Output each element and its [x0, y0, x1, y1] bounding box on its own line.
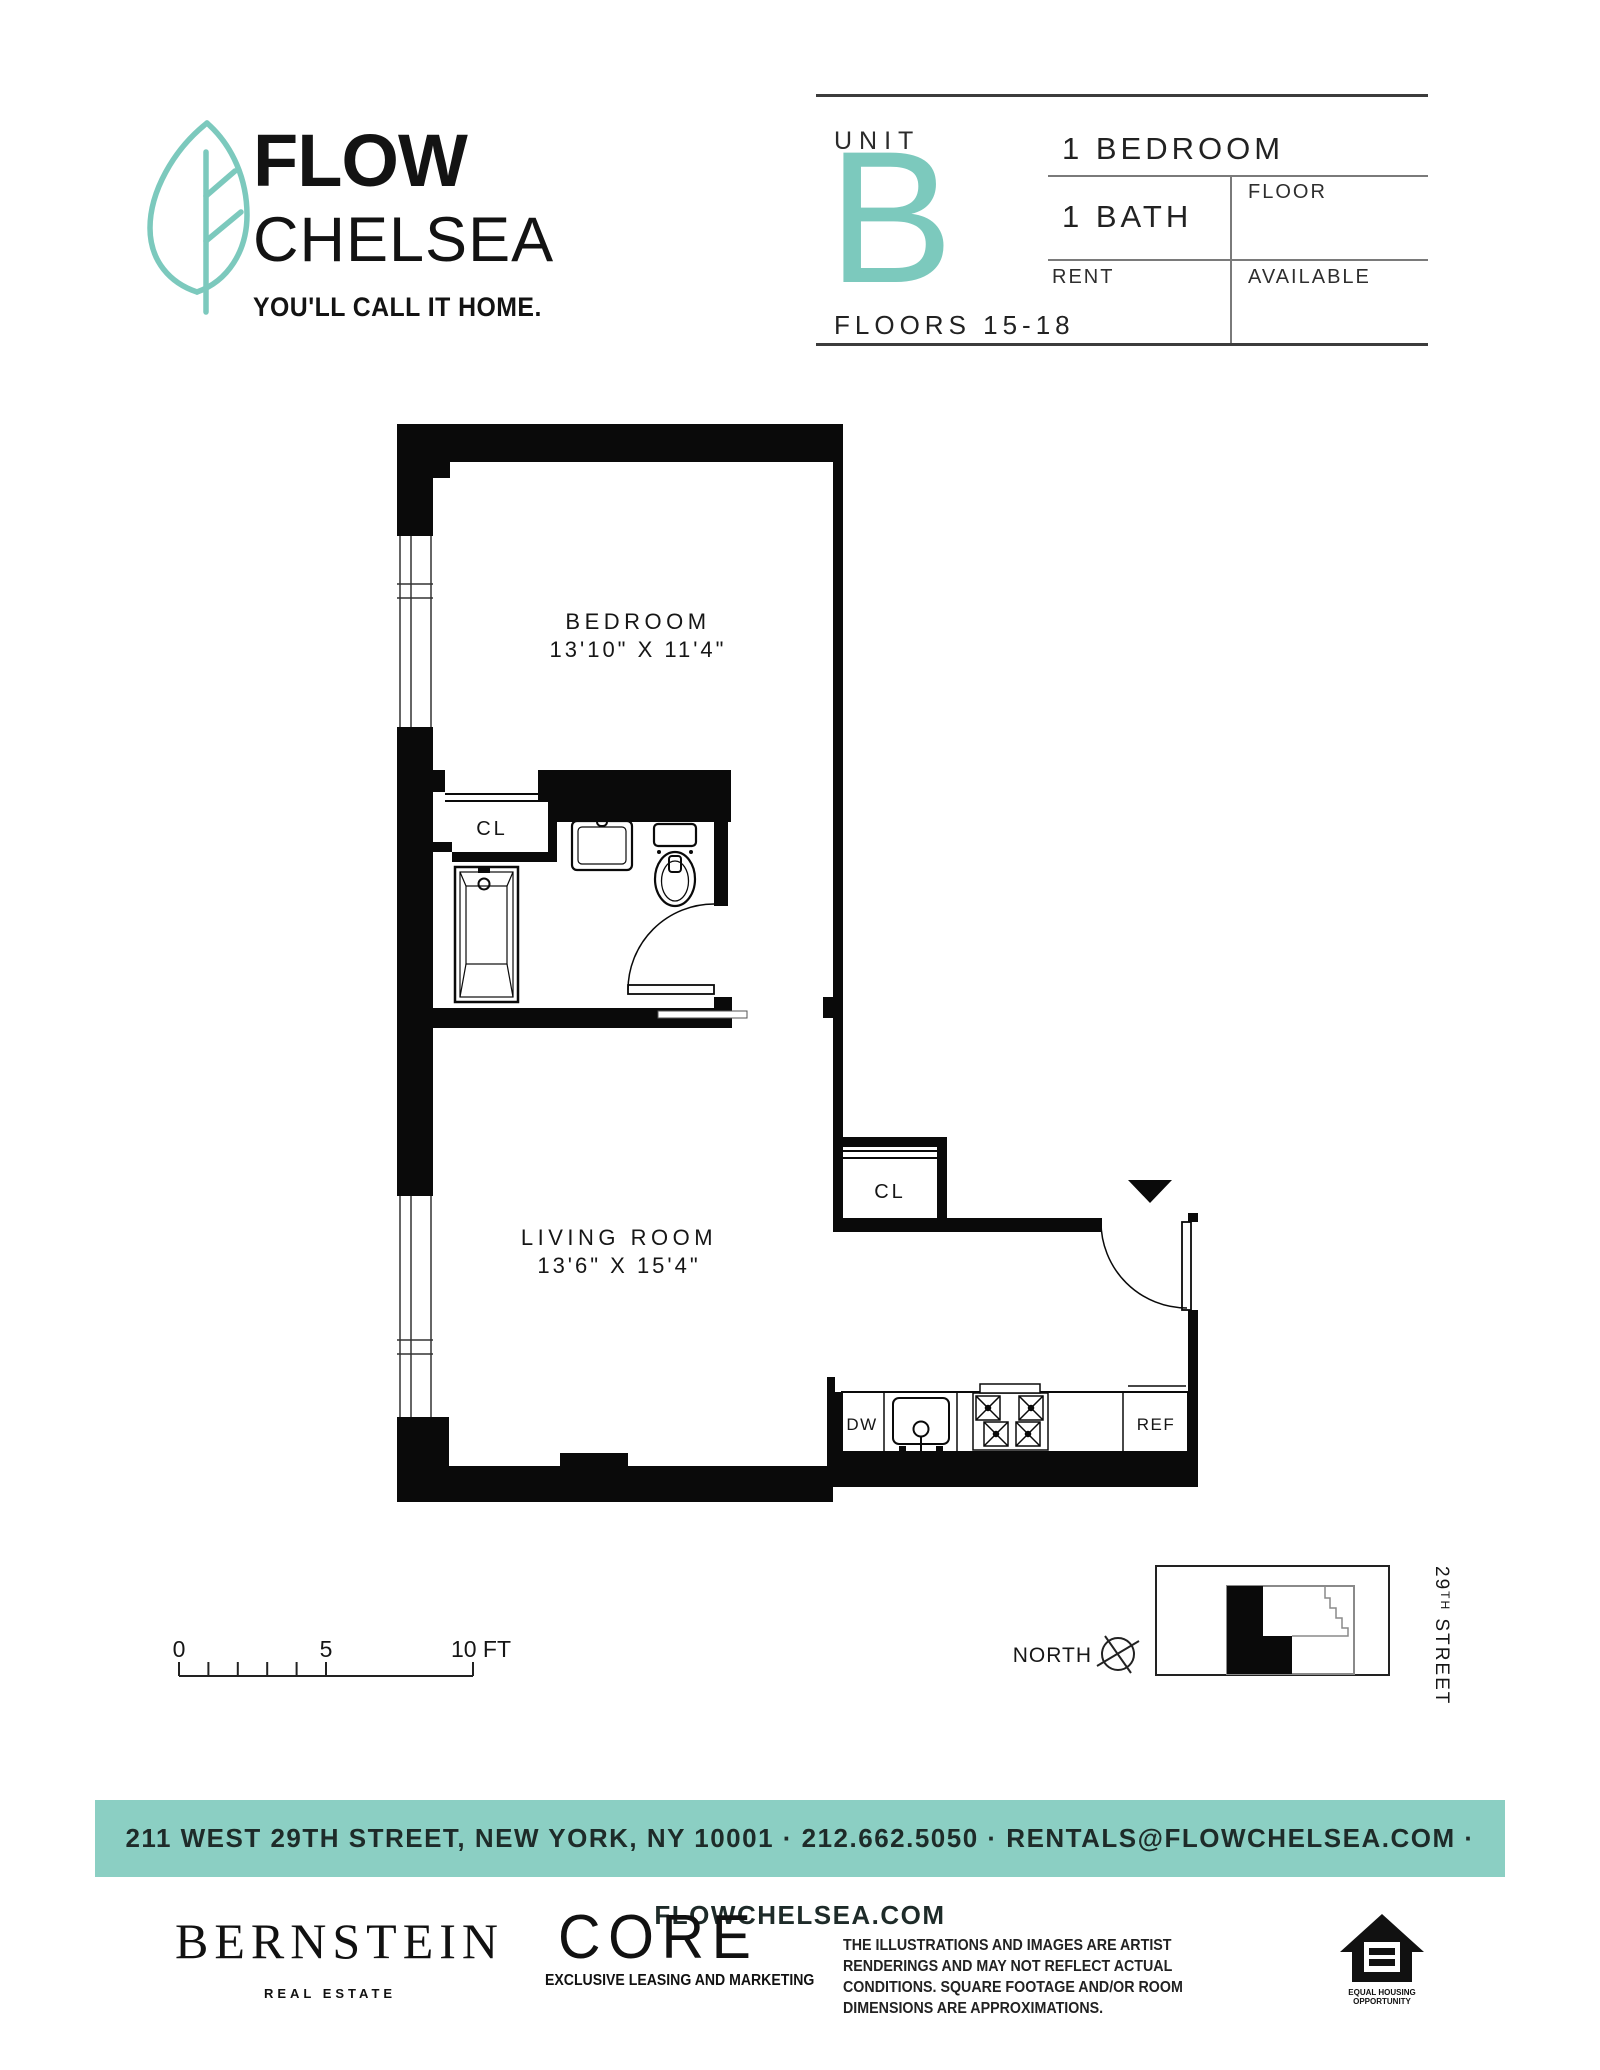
scale-bar [179, 1662, 473, 1676]
bathtub [455, 866, 518, 1002]
street-label: 29TH STREET [1431, 1566, 1452, 1705]
bedroom-label: BEDROOM [565, 609, 710, 634]
available-field-label: AVAILABLE [1248, 266, 1371, 289]
window-living [397, 1196, 433, 1417]
floor-field-label: FLOOR [1248, 181, 1327, 204]
brand-tagline: YOU'LL CALL IT HOME. [253, 292, 542, 323]
window-bedroom [397, 536, 433, 727]
refrigerator-label: REF [1137, 1415, 1176, 1434]
scale-0: 0 [173, 1636, 186, 1662]
scale-5: 5 [320, 1636, 333, 1662]
north-label: NORTH [1013, 1644, 1092, 1667]
equal-housing-logo: EQUAL HOUSING OPPORTUNITY [1340, 1912, 1424, 2007]
closet-bedroom-door [445, 794, 538, 801]
bernstein-sub-label: REAL ESTATE [175, 1986, 485, 2001]
dishwasher-label: DW [846, 1415, 877, 1434]
north-compass-icon [1097, 1636, 1139, 1673]
closet-entry-label: CL [874, 1181, 906, 1203]
card-rule-mid1 [1048, 175, 1428, 177]
stove [973, 1384, 1048, 1450]
scale-10ft: 10 FT [451, 1636, 511, 1662]
flyer-page: BEDROOM 13'10" X 11'4" LIVING ROOM 13'6"… [0, 0, 1600, 2070]
contact-banner: 211 WEST 29TH STREET, NEW YORK, NY 10001… [95, 1800, 1505, 1877]
unit-info-card: UNIT B FLOORS 15-18 1 BEDROOM 1 BATH FLO… [816, 94, 1428, 346]
card-rule-top [816, 94, 1428, 97]
disclaimer-text: THE ILLUSTRATIONS AND IMAGES ARE ARTIST … [843, 1936, 1266, 2020]
entry-arrow-icon [1128, 1180, 1172, 1203]
toilet [654, 824, 696, 906]
bath-count: 1 BATH [1062, 199, 1192, 235]
eho-text-line-2: OPPORTUNITY [1340, 1998, 1424, 2007]
closet-bedroom-label: CL [476, 818, 508, 840]
entry-door [1101, 1222, 1191, 1310]
unit-letter: B [828, 140, 953, 294]
disclaimer-line-2: CONDITIONS. SQUARE FOOTAGE AND/OR ROOM D… [843, 1978, 1266, 2020]
bernstein-logo: BERNSTEIN [175, 1912, 504, 1970]
brand-name-flow: FLOW [253, 118, 467, 203]
equal-housing-house-icon [1340, 1912, 1424, 1984]
bedroom-count: 1 BEDROOM [1062, 131, 1284, 167]
floors-range: FLOORS 15-18 [834, 310, 1075, 341]
card-rule-bottom [816, 343, 1428, 346]
card-rule-mid2 [1048, 259, 1428, 261]
core-sub-label: EXCLUSIVE LEASING AND MARKETING [545, 1972, 814, 1990]
key-map [1156, 1566, 1389, 1675]
living-room-label: LIVING ROOM [521, 1225, 717, 1250]
brand-name-chelsea: CHELSEA [253, 204, 554, 276]
rent-field-label: RENT [1052, 266, 1114, 289]
disclaimer-line-1: THE ILLUSTRATIONS AND IMAGES ARE ARTIST … [843, 1936, 1266, 1978]
bedroom-dims: 13'10" X 11'4" [550, 637, 727, 662]
kitchen-sink [893, 1398, 949, 1457]
card-rule-vertical [1230, 175, 1232, 343]
living-room-dims: 13'6" X 15'4" [537, 1253, 700, 1278]
closet-entry-door [843, 1151, 937, 1158]
core-logo: CORE [558, 1902, 759, 1973]
leaf-icon [150, 123, 247, 312]
